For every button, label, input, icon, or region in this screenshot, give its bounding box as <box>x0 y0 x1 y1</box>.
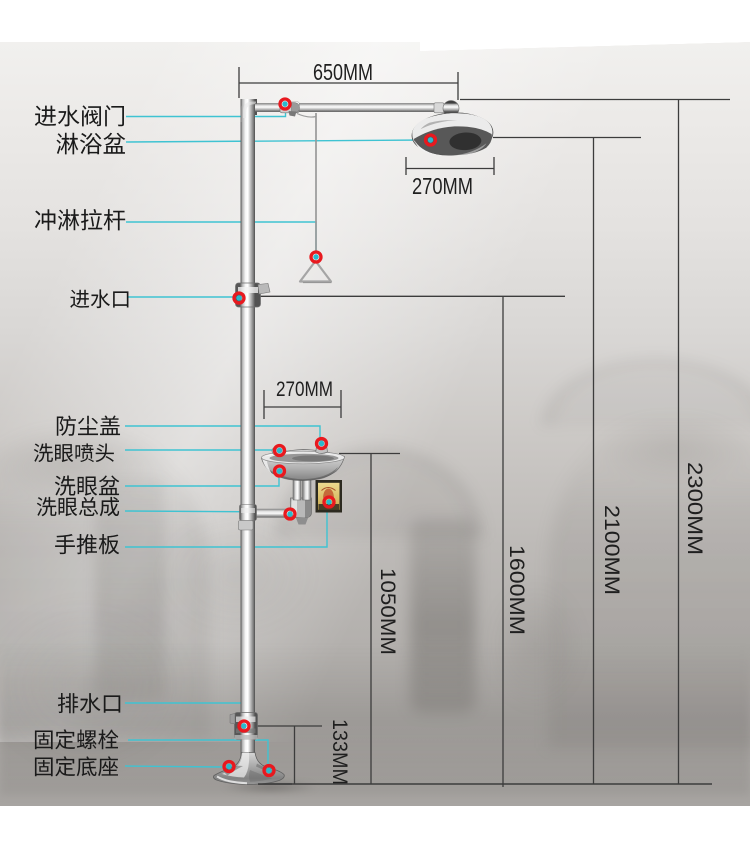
svg-text:1600MM: 1600MM <box>505 545 528 635</box>
svg-text:270MM: 270MM <box>276 378 333 401</box>
svg-text:650MM: 650MM <box>313 59 373 85</box>
svg-text:133MM: 133MM <box>328 719 351 785</box>
svg-text:270MM: 270MM <box>412 173 473 199</box>
svg-text:1050MM: 1050MM <box>376 568 399 655</box>
svg-text:2100MM: 2100MM <box>600 505 623 595</box>
svg-text:2300MM: 2300MM <box>683 462 706 555</box>
